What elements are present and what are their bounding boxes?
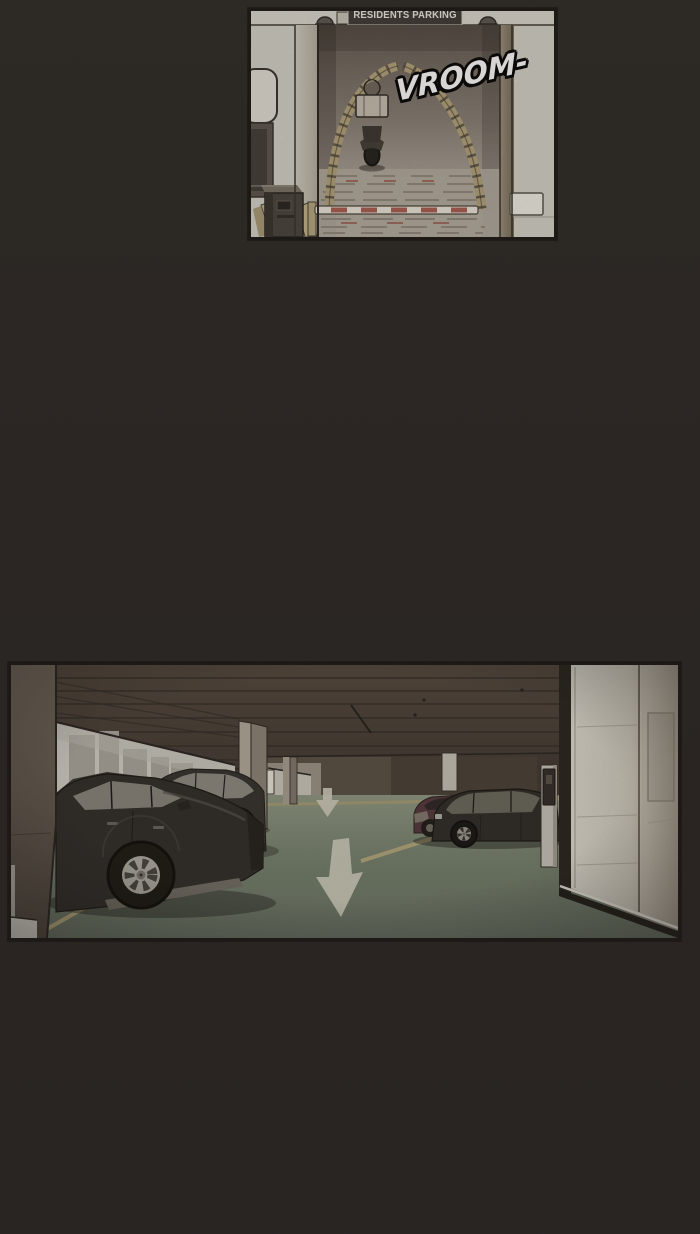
sign-bracket <box>337 12 349 24</box>
machine-side <box>265 193 273 237</box>
residents-parking-sign-label: RESIDENTS PARKING <box>351 8 459 24</box>
garage-scene <box>11 665 678 938</box>
booth-hood <box>251 69 277 123</box>
vignette <box>11 665 678 938</box>
booth-recess-inner <box>251 129 267 191</box>
wall-plate <box>510 193 543 215</box>
ramp-shade-top <box>318 25 500 51</box>
entrance-scene <box>251 11 554 237</box>
ticket-machine <box>261 185 303 237</box>
helmet <box>364 80 380 96</box>
machine-slot <box>277 215 295 218</box>
panel-parking-entrance: RESIDENTS PARKING VROOM- <box>248 8 557 240</box>
delivery-box <box>356 95 388 117</box>
scooter-body <box>362 126 382 142</box>
comic-page: RESIDENTS PARKING VROOM- <box>0 0 700 1234</box>
panel-parking-garage <box>8 662 681 941</box>
machine-screen <box>277 201 291 210</box>
